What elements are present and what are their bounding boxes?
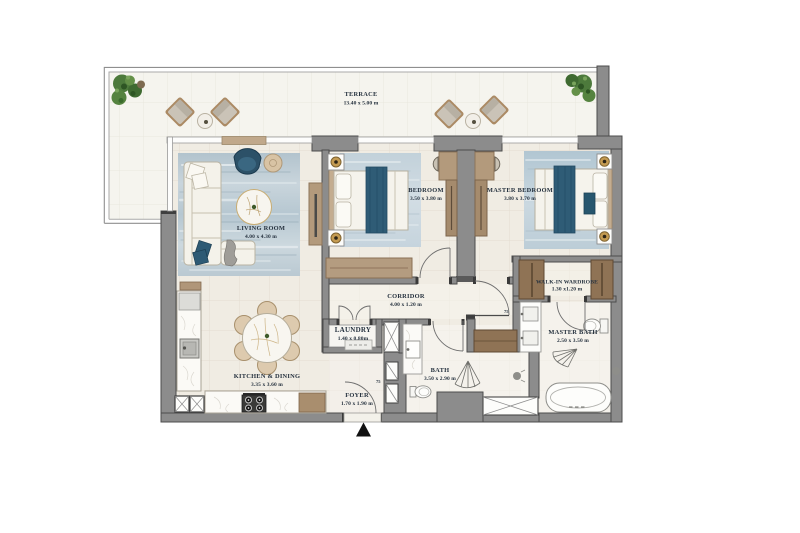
svg-text:LAUNDRY: LAUNDRY xyxy=(335,326,372,334)
svg-text:75: 75 xyxy=(376,379,381,384)
svg-text:MASTER BEDROOM: MASTER BEDROOM xyxy=(487,187,553,194)
svg-text:2.50 x 3.50 m: 2.50 x 3.50 m xyxy=(557,338,589,344)
svg-text:3.50 x 2.90 m: 3.50 x 2.90 m xyxy=(424,376,456,382)
svg-text:LIVING ROOM: LIVING ROOM xyxy=(237,225,285,232)
svg-text:TERRACE: TERRACE xyxy=(345,91,378,98)
svg-text:3.80 x 3.70 m: 3.80 x 3.70 m xyxy=(504,196,536,202)
svg-text:3.35 x 3.60 m: 3.35 x 3.60 m xyxy=(251,382,283,388)
svg-text:13.40 x 5.00 m: 13.40 x 5.00 m xyxy=(344,101,379,107)
svg-text:1.40 x 0.80m: 1.40 x 0.80m xyxy=(338,336,369,342)
svg-text:1.70 x 1.90 m: 1.70 x 1.90 m xyxy=(341,401,373,407)
svg-text:4.00 x 1.20 m: 4.00 x 1.20 m xyxy=(390,302,422,308)
svg-text:WALK-IN WARDROBE: WALK-IN WARDROBE xyxy=(536,280,598,286)
svg-text:MASTER BATH: MASTER BATH xyxy=(548,329,597,336)
svg-text:BATH: BATH xyxy=(431,367,450,374)
svg-text:4.00 x 4.30 m: 4.00 x 4.30 m xyxy=(245,234,277,240)
svg-text:3.50 x 3.80 m: 3.50 x 3.80 m xyxy=(410,196,442,202)
svg-text:1.30 x1.20 m: 1.30 x1.20 m xyxy=(552,287,583,293)
svg-text:KITCHEN & DINING: KITCHEN & DINING xyxy=(234,373,301,380)
svg-text:BEDROOM: BEDROOM xyxy=(408,187,443,194)
svg-text:CORRIDOR: CORRIDOR xyxy=(387,293,425,300)
svg-text:FOYER: FOYER xyxy=(345,392,369,399)
